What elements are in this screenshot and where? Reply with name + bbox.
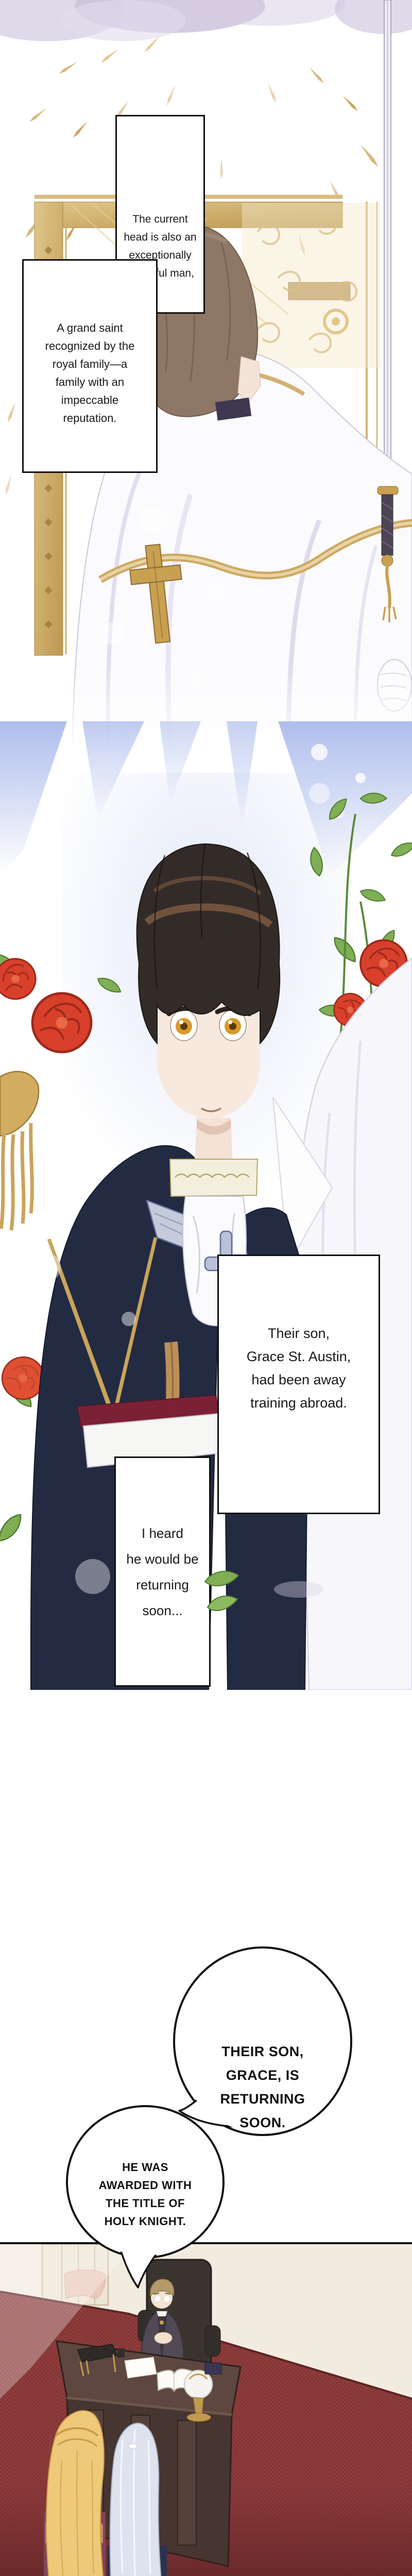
speech-line: THEIR SON, (196, 2040, 330, 2063)
narration-line: training abroad. (250, 1392, 347, 1415)
speech-line: HOLY KNIGHT. (78, 2212, 212, 2230)
narration-box-4: I heard he would be returning soon... (114, 1456, 211, 1687)
narration-line: reputation. (63, 409, 117, 427)
narration-line: recognized by the (45, 337, 135, 355)
narration-line: A grand saint (57, 319, 123, 337)
leaf-overlay (202, 1566, 244, 1628)
dark-ledger (205, 2363, 221, 2374)
speech-line: THE TITLE OF (78, 2194, 212, 2212)
narration-line: he would be (126, 1546, 198, 1572)
epaulette (0, 1072, 39, 1136)
lavender-clouds (0, 0, 412, 41)
narration-line: head is also an (124, 228, 196, 246)
narration-line: had been away (251, 1368, 346, 1392)
narration-line: royal family—a (53, 355, 127, 373)
narration-line: The current (132, 210, 187, 228)
narration-line: returning (136, 1572, 189, 1598)
duke-cross-icon (160, 2320, 164, 2325)
inkwell (117, 2348, 125, 2358)
speech-bubble-their-son-text: THEIR SON, GRACE, IS RETURNING SOON. (196, 2040, 330, 2134)
narration-line: I heard (142, 1520, 183, 1546)
speech-line: AWARDED WITH (78, 2176, 212, 2194)
lavender-wisp (274, 1581, 323, 1598)
narration-line: soon... (142, 1598, 182, 1623)
speech-line: RETURNING (196, 2087, 330, 2111)
bubble-tail (121, 2251, 157, 2287)
speech-line: GRACE, IS (196, 2063, 330, 2087)
speech-bubble-holy-knight-title-text: HE WAS AWARDED WITH THE TITLE OF HOLY KN… (78, 2158, 212, 2230)
narration-line: Their son, (268, 1322, 330, 1345)
narration-box-joint (117, 261, 153, 284)
narration-box-2: A grand saint recognized by the royal fa… (22, 259, 158, 473)
speech-line: SOON. (196, 2111, 330, 2134)
narration-box-3: Their son, Grace St. Austin, had been aw… (217, 1255, 380, 1514)
speech-line: HE WAS (78, 2158, 212, 2176)
narration-line: Grace St. Austin, (247, 1345, 351, 1368)
uniform-collar (170, 1159, 257, 1196)
narration-line: family with an (56, 373, 124, 391)
webtoon-page: The current head is also an exceptionall… (0, 0, 412, 2576)
ceremonial-sword (384, 0, 391, 488)
narration-line: impeccable (61, 391, 118, 409)
